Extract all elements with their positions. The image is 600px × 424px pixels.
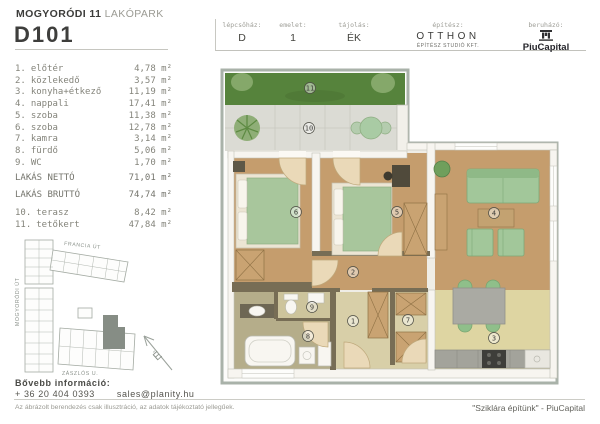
washer-icon	[299, 347, 315, 364]
footer-disclaimer: Az ábrázolt berendezés csak illusztráció…	[15, 404, 235, 411]
label-3: 3	[492, 335, 496, 343]
orientation-value: ÉK	[318, 32, 390, 44]
armchair-icon	[498, 229, 524, 256]
unit-id: D101	[14, 22, 75, 48]
roofgarden-row: 11.tetőkert47,84 m²	[15, 220, 172, 230]
floor-plan: 11 10 6 5 4 2 1 9 8 7 3	[220, 66, 560, 386]
footer-info-title: Bővebb információ:	[15, 378, 110, 388]
footer-contact: + 36 20 404 0393sales@planity.hu	[15, 389, 195, 399]
info-staircase: lépcsőház: D	[216, 19, 268, 50]
label-2: 2	[351, 269, 355, 277]
street-bottom-label: ZÁSZLÓS U.	[62, 370, 98, 377]
dining-table-icon	[453, 280, 505, 332]
kitchen-sink-icon	[525, 350, 550, 368]
label-10: 10	[305, 125, 313, 133]
floor-value: 1	[268, 32, 318, 44]
room-row: 6.szoba12,78 m²	[15, 123, 172, 133]
developer-name: PiuCapital	[523, 42, 569, 53]
north-compass-icon: É	[144, 336, 172, 370]
label-4: 4	[492, 210, 496, 218]
architect-subtitle: ÉPÍTÉSZ STUDIÓ KFT.	[390, 43, 506, 49]
developer-label: beruházó:	[506, 21, 586, 29]
room-row: 5.szoba11,38 m²	[15, 111, 172, 121]
info-floor: emelet: 1	[268, 19, 318, 50]
street-left-label: MOGYORÓDI ÚT	[14, 277, 21, 326]
brand-bold: MOGYORÓDI 11	[16, 8, 101, 20]
label-8: 8	[306, 333, 310, 341]
footer-slogan: "Sziklára építünk" - PiuCapital	[472, 403, 585, 413]
site-buildings	[25, 240, 135, 372]
room-row: 8.fürdő5,06 m²	[15, 146, 172, 156]
brand-light: LAKÓPARK	[105, 8, 164, 20]
room-row: 1.előtér4,78 m²	[15, 64, 172, 74]
street-top-label: FRANCIA ÚT	[64, 240, 102, 251]
unit-underline	[15, 49, 168, 50]
terrace-row: 10.terasz8,42 m²	[15, 208, 172, 218]
stove-icon	[482, 350, 506, 368]
net-total-row: LAKÁS NETTÓ71,01 m²	[15, 173, 172, 183]
phone-number: + 36 20 404 0393	[15, 389, 95, 399]
wardrobe-icon	[368, 292, 388, 338]
plant-icon	[434, 161, 450, 177]
room-row: 3.konyha+étkező11,19 m²	[15, 87, 172, 97]
architect-label: építész:	[390, 21, 506, 29]
floor-label: emelet:	[268, 21, 318, 29]
architect-block: építész: OTTHON ÉPÍTÉSZ STUDIÓ KFT.	[390, 19, 506, 50]
label-6: 6	[294, 209, 298, 217]
info-orientation: tájolás: ÉK	[318, 19, 390, 50]
room-row: 7.kamra3,14 m²	[15, 134, 172, 144]
room-row: 4.nappali17,41 m²	[15, 99, 172, 109]
staircase-label: lépcsőház:	[216, 21, 268, 29]
site-highlighted-unit	[103, 315, 125, 349]
kitchen-counter-icon	[435, 350, 550, 368]
wardrobe-icon	[404, 203, 427, 255]
floorplan-sheet: MOGYORÓDI 11 LAKÓPARK D101 lépcsőház: D …	[0, 0, 600, 424]
armchair-icon	[467, 229, 493, 256]
gross-total-row: LAKÁS BRUTTÓ74,74 m²	[15, 190, 172, 200]
toilet-icon	[286, 300, 297, 314]
developer-block: beruházó: PiuCapital	[506, 19, 586, 50]
brand: MOGYORÓDI 11 LAKÓPARK	[16, 8, 164, 20]
sofa-icon	[467, 169, 539, 203]
email-address: sales@planity.hu	[117, 389, 195, 399]
terrace-plant-icon	[234, 115, 260, 141]
sink-icon	[249, 306, 265, 316]
label-11: 11	[306, 85, 314, 93]
label-1: 1	[351, 318, 355, 326]
terrace	[225, 105, 408, 151]
staircase-value: D	[216, 32, 268, 44]
unit-info-bar: lépcsőház: D emelet: 1 tájolás: ÉK építé…	[215, 19, 586, 51]
piucapital-logo-icon	[536, 29, 556, 42]
orientation-label: tájolás:	[318, 21, 390, 29]
footer-divider	[14, 399, 585, 400]
room-row: 9.WC1,70 m²	[15, 158, 172, 168]
bathtub-icon	[245, 336, 295, 366]
compass-letter: É	[150, 349, 164, 364]
label-9: 9	[310, 304, 314, 312]
label-7: 7	[406, 317, 410, 325]
wardrobe-icon	[236, 250, 264, 280]
developer-logo: PiuCapital	[506, 29, 586, 53]
room-row: 2.közlekedő3,57 m²	[15, 76, 172, 86]
label-5: 5	[395, 209, 399, 217]
site-map: FRANCIA ÚT MOGYORÓDI ÚT ZÁSZLÓS U. É	[8, 234, 213, 382]
architect-logo-text: OTTHON	[390, 31, 506, 42]
